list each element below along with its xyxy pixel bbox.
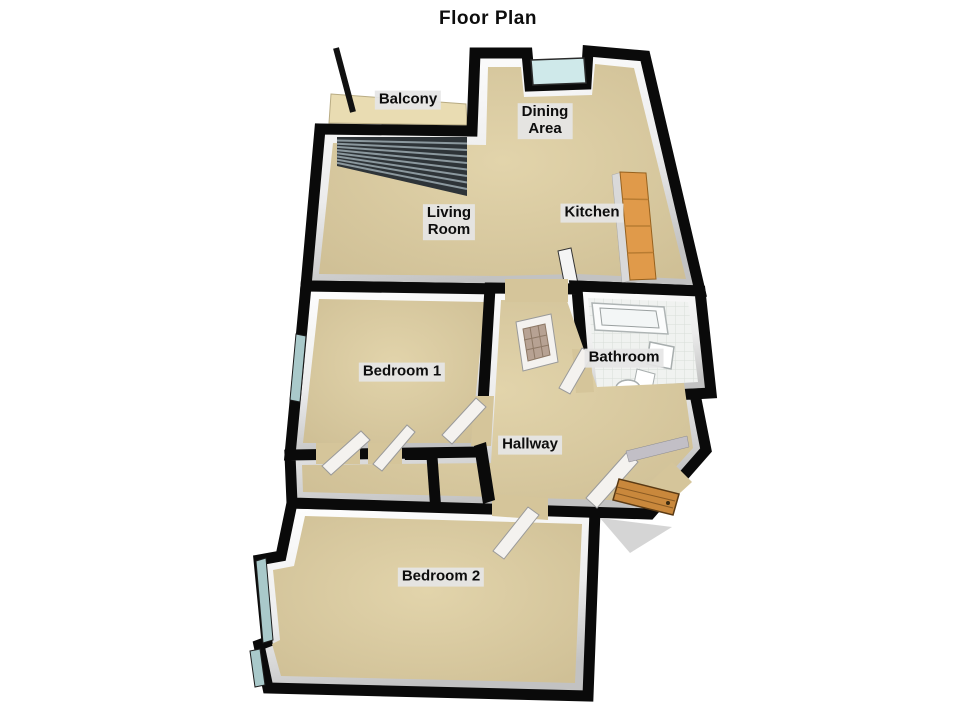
label-balcony: Balcony [375, 91, 441, 110]
label-living-room: Living Room [423, 204, 475, 240]
bay-window-glass [531, 58, 586, 85]
label-kitchen: Kitchen [560, 204, 623, 223]
living-hallway-door [516, 314, 558, 371]
label-bedroom1: Bedroom 1 [359, 363, 445, 382]
bedroom2-floor [272, 516, 582, 683]
entrance-step-shadow [600, 518, 672, 553]
page-title: Floor Plan [439, 8, 537, 30]
open-plan-room [306, 51, 700, 302]
label-hallway: Hallway [498, 436, 562, 455]
label-bathroom: Bathroom [585, 349, 664, 368]
label-bedroom2: Bedroom 2 [398, 568, 484, 587]
floor-plan-svg [0, 0, 980, 712]
bathtub [592, 303, 668, 334]
label-dining-area: Dining Area [518, 103, 573, 139]
floor-plan-image: Floor Plan Balcony Dining Area Living Ro… [0, 0, 980, 712]
bedroom2-room [250, 503, 595, 696]
balcony-area [329, 48, 467, 125]
